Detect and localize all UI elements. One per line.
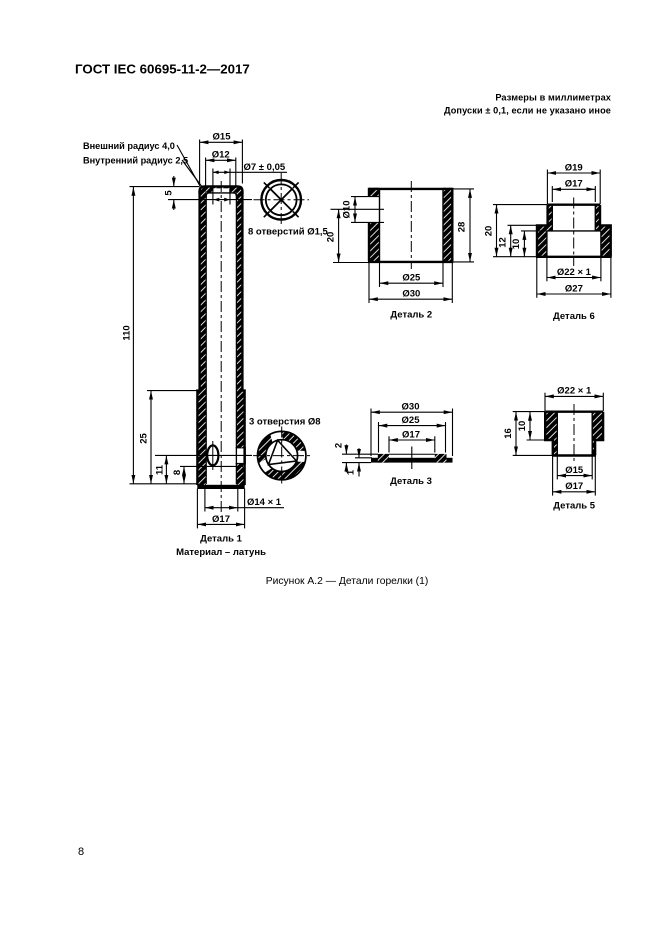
svg-text:16: 16 bbox=[503, 428, 514, 439]
svg-text:25: 25 bbox=[139, 433, 150, 444]
svg-text:Деталь 1: Деталь 1 bbox=[200, 534, 242, 545]
svg-text:Ø22 × 1: Ø22 × 1 bbox=[557, 386, 592, 397]
svg-text:11: 11 bbox=[154, 464, 165, 475]
svg-text:8 отверстий Ø1,5: 8 отверстий Ø1,5 bbox=[248, 227, 329, 238]
svg-text:12: 12 bbox=[498, 237, 509, 248]
svg-text:Ø15: Ø15 bbox=[565, 465, 584, 476]
svg-text:28: 28 bbox=[457, 222, 468, 233]
svg-text:Размеры в миллиметрах: Размеры в миллиметрах bbox=[495, 93, 611, 103]
svg-text:2: 2 bbox=[333, 443, 344, 448]
svg-text:ГОСТ IEC 60695-11-2—2017: ГОСТ IEC 60695-11-2—2017 bbox=[75, 62, 250, 77]
svg-text:8: 8 bbox=[78, 846, 84, 858]
svg-text:Деталь 5: Деталь 5 bbox=[553, 501, 595, 512]
svg-text:Деталь 2: Деталь 2 bbox=[390, 310, 432, 321]
svg-text:Ø12: Ø12 bbox=[212, 149, 230, 160]
svg-text:Ø7 ± 0,05: Ø7 ± 0,05 bbox=[244, 162, 286, 173]
svg-text:20: 20 bbox=[326, 232, 337, 243]
svg-text:Деталь 6: Деталь 6 bbox=[553, 311, 595, 322]
svg-text:Деталь 3: Деталь 3 bbox=[390, 476, 432, 487]
svg-text:110: 110 bbox=[122, 325, 133, 340]
svg-text:Ø17: Ø17 bbox=[565, 179, 583, 190]
svg-text:Внутренний радиус 2,5: Внутренний радиус 2,5 bbox=[83, 156, 188, 166]
svg-text:Ø25: Ø25 bbox=[402, 415, 421, 426]
svg-text:Внешний радиус 4,0: Внешний радиус 4,0 bbox=[83, 141, 175, 151]
svg-text:Ø27: Ø27 bbox=[565, 283, 583, 294]
svg-text:3 отверстия Ø8: 3 отверстия Ø8 bbox=[249, 417, 321, 428]
svg-text:10: 10 bbox=[517, 421, 528, 432]
svg-text:Ø17: Ø17 bbox=[565, 481, 583, 492]
svg-text:1: 1 bbox=[346, 469, 357, 475]
svg-text:20: 20 bbox=[483, 226, 494, 237]
svg-text:Рисунок А.2 — Детали горелки (: Рисунок А.2 — Детали горелки (1) bbox=[266, 576, 429, 587]
svg-text:Ø19: Ø19 bbox=[565, 162, 583, 173]
svg-text:Ø30: Ø30 bbox=[402, 402, 420, 413]
svg-text:5: 5 bbox=[164, 190, 175, 196]
svg-text:Материал – латунь: Материал – латунь bbox=[176, 547, 266, 558]
svg-text:10: 10 bbox=[511, 239, 522, 250]
svg-text:Ø30: Ø30 bbox=[402, 289, 420, 300]
svg-text:Ø14 × 1: Ø14 × 1 bbox=[247, 497, 282, 508]
svg-text:Ø17: Ø17 bbox=[212, 514, 230, 525]
svg-text:Ø17: Ø17 bbox=[402, 429, 420, 440]
svg-text:Ø22 × 1: Ø22 × 1 bbox=[557, 267, 592, 278]
svg-text:Ø15: Ø15 bbox=[213, 131, 232, 142]
svg-text:8: 8 bbox=[172, 470, 183, 475]
svg-text:Ø25: Ø25 bbox=[402, 273, 421, 284]
svg-text:Допуски ± 0,1, если не указано: Допуски ± 0,1, если не указано иное bbox=[444, 106, 611, 116]
svg-text:Ø10: Ø10 bbox=[342, 201, 353, 219]
